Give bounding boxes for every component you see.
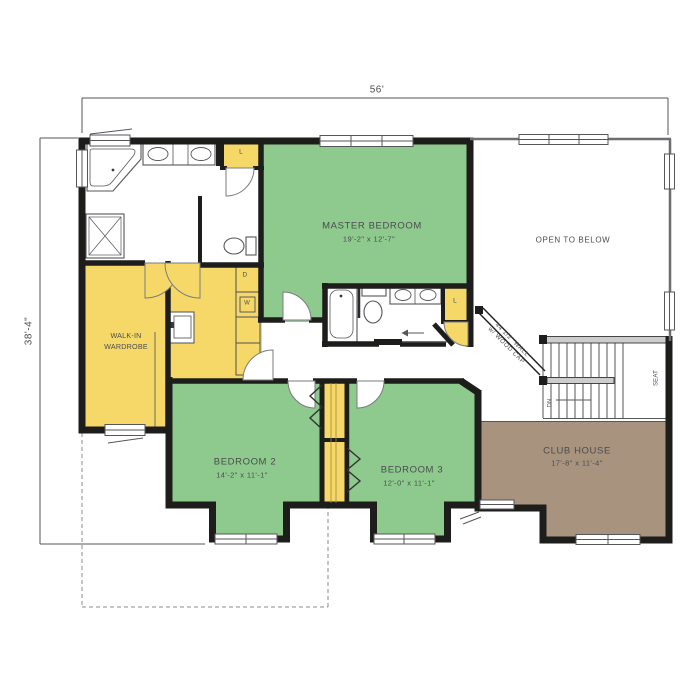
hall-bath-fixtures (326, 286, 441, 342)
stair-handrail-top (543, 337, 668, 344)
toilet-2 (359, 287, 386, 323)
window-symbol (77, 150, 88, 187)
window-symbol (665, 154, 675, 189)
floor-plan-page: MASTER BEDROOM 19'-2" x 12'-7" BEDROOM 2… (0, 0, 700, 700)
linen-hall-label: L (453, 297, 457, 304)
bedroom-3-dims: 12'-0" x 11'-1" (383, 480, 435, 489)
door-swing-wc (226, 168, 254, 196)
toilet (224, 237, 256, 255)
entry-arrow-icon (402, 330, 409, 337)
club-house-label: CLUB HOUSE (543, 447, 611, 458)
window-symbol (519, 135, 608, 145)
bedroom-2-label: BEDROOM 2 (214, 458, 276, 469)
corner-tub (87, 144, 141, 191)
window-symbol (665, 292, 675, 330)
club-house-floor (478, 422, 668, 540)
window-symbol (320, 136, 413, 147)
master-bedroom-dims: 19'-2" x 12'-7" (343, 236, 395, 245)
open-to-below-label: OPEN TO BELOW (536, 235, 611, 244)
dryer-label: D (243, 271, 248, 278)
linen-top-label: L (239, 148, 243, 155)
seat-label: SEAT (654, 370, 661, 386)
window-symbol (576, 535, 640, 545)
laundry-sink (170, 312, 194, 343)
window-symbol (90, 135, 130, 146)
window-symbol (480, 500, 514, 509)
walk-in-wardrobe-label-line1: WALK-IN (110, 332, 141, 340)
window-symbol (105, 425, 145, 436)
stairs (475, 306, 668, 422)
walk-in-wardrobe-label-line2: WARDROBE (104, 343, 148, 351)
washer-label: W (244, 301, 250, 308)
window-symbol (374, 534, 435, 544)
master-bedroom-label: MASTER BEDROOM (322, 222, 422, 233)
stair-handrail-mid (547, 378, 614, 384)
bedroom-3-label: BEDROOM 3 (381, 466, 443, 477)
vanity-double-sink (143, 143, 215, 165)
dimension-top-label: 56' (370, 84, 385, 96)
shower (86, 214, 124, 258)
bedroom-closet-strip (322, 381, 347, 505)
dimension-left-label: 38'-4" (23, 317, 35, 345)
club-house-dims: 17'-8" x 11'-4" (551, 460, 603, 469)
stairs-down-label: DN (548, 398, 555, 407)
bedroom-2-dims: 14'-2" x 11'-1" (216, 472, 268, 481)
window-symbol (215, 534, 277, 544)
bathtub (326, 286, 357, 342)
